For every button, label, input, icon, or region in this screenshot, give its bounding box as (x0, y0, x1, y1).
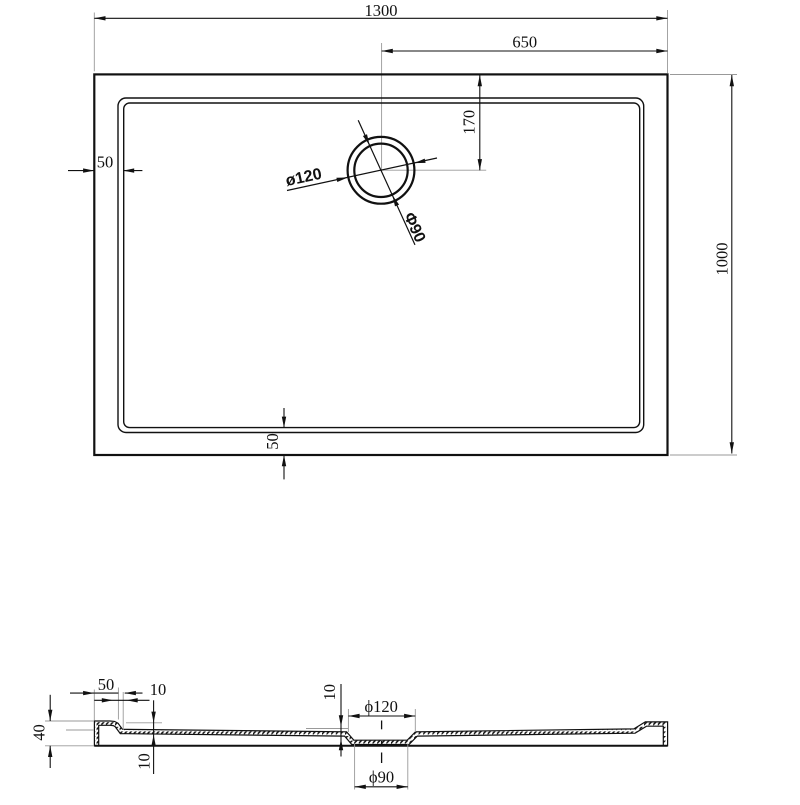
svg-text:ϕ90: ϕ90 (369, 768, 394, 787)
svg-text:Φ90: Φ90 (400, 210, 428, 245)
svg-text:10: 10 (150, 680, 167, 699)
svg-text:650: 650 (512, 32, 537, 51)
svg-text:10: 10 (320, 684, 339, 701)
svg-text:ø120: ø120 (284, 166, 323, 190)
svg-text:1300: 1300 (365, 1, 398, 20)
svg-text:50: 50 (263, 433, 282, 450)
svg-text:40: 40 (29, 724, 48, 741)
svg-text:50: 50 (97, 153, 114, 172)
svg-text:50: 50 (98, 675, 115, 694)
svg-text:1000: 1000 (713, 243, 732, 276)
svg-text:10: 10 (134, 753, 153, 770)
svg-text:170: 170 (460, 110, 479, 135)
svg-text:ϕ120: ϕ120 (364, 697, 397, 716)
